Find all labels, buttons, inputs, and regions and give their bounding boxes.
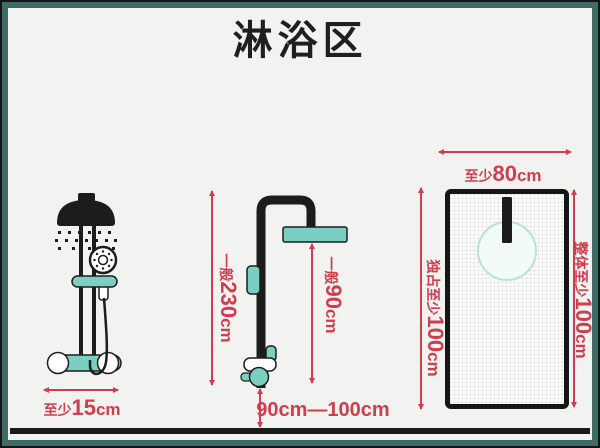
hand-shower-width-label: 至少15cm [43,397,120,419]
page-title: 淋浴区 [2,8,598,66]
overall-depth-label: 整体至少100cm [572,241,594,358]
floor-line [10,428,590,434]
valve-height-label: 90cm—100cm [256,400,389,420]
shower-area-grid-icon [450,194,564,404]
shower-area-top-view [445,189,569,409]
exclusive-depth-label: 独占至少100cm [424,259,446,376]
dimension-line-hand-shower-width [44,389,118,391]
dimension-line-exclusive-depth [420,188,422,409]
shower-arm-icon [502,197,512,243]
dimension-line-head-height [311,244,313,383]
column-height-label: 一般230cm [217,253,239,342]
hand-shower-icon [44,190,159,405]
dimension-line-area-width [439,151,571,153]
head-height-label: 一般90cm [322,256,344,333]
dimension-line-column-height [211,191,213,385]
area-width-label: 至少80cm [464,163,541,185]
poster-frame: 淋浴区 [0,0,600,448]
